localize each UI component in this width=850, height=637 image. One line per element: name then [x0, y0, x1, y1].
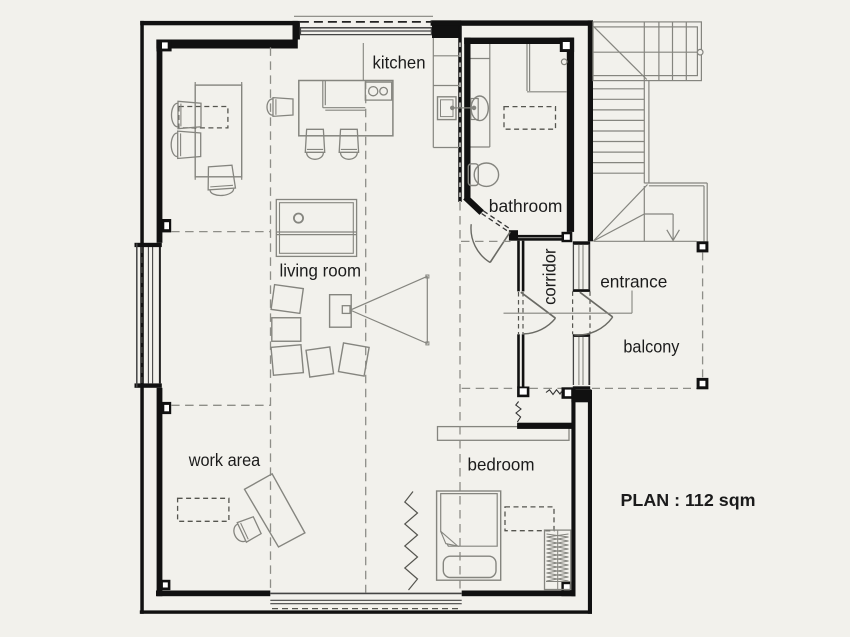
- svg-text:bathroom: bathroom: [489, 196, 563, 216]
- svg-text:entrance: entrance: [600, 272, 667, 292]
- svg-text:bedroom: bedroom: [468, 454, 535, 474]
- svg-text:PLAN : 112 sqm: PLAN : 112 sqm: [621, 490, 756, 510]
- svg-text:corridor: corridor: [539, 248, 559, 305]
- svg-text:work area: work area: [188, 450, 261, 470]
- svg-text:living room: living room: [280, 261, 362, 281]
- svg-text:balcony: balcony: [623, 336, 679, 356]
- svg-text:kitchen: kitchen: [373, 53, 426, 73]
